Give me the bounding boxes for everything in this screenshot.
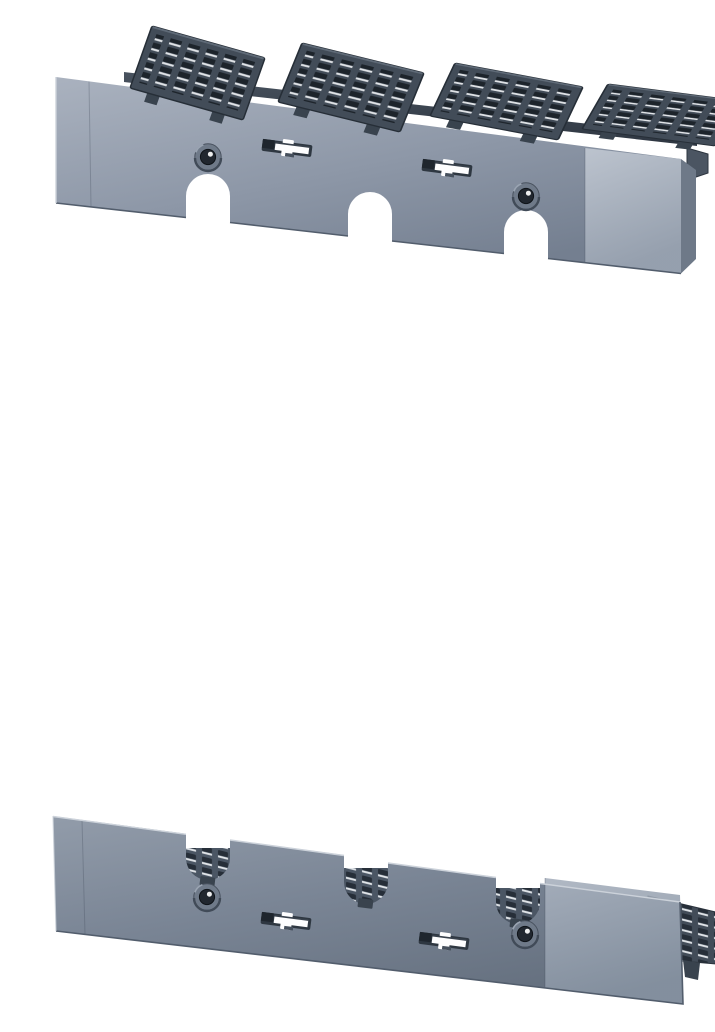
bottom-cover-end-facet [545,878,683,1004]
product-render: Product render on a white background of … [40,16,715,1016]
screw-hole [195,144,221,171]
top-cover-end-facet [585,148,681,274]
screw-hole [512,921,538,948]
side-flap-tab [683,960,700,980]
grille-tab [357,898,373,909]
screw-hole [513,183,539,210]
product-render-canvas [40,16,715,1016]
top-cover-side [681,159,696,274]
screw-hole [194,884,220,911]
